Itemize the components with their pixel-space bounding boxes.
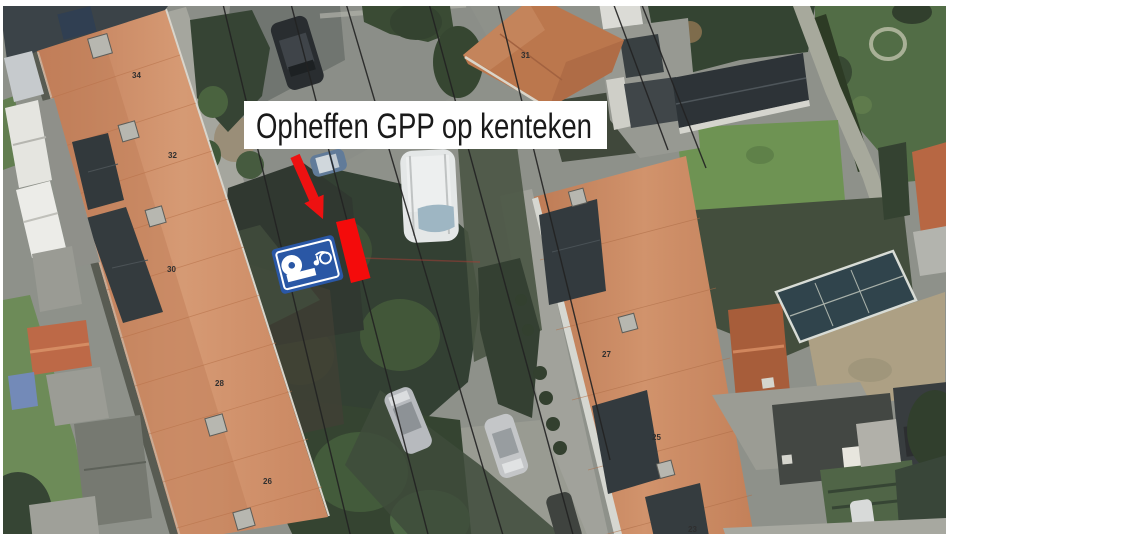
svg-text:Opheffen GPP op kenteken: Opheffen GPP op kenteken (256, 107, 592, 146)
